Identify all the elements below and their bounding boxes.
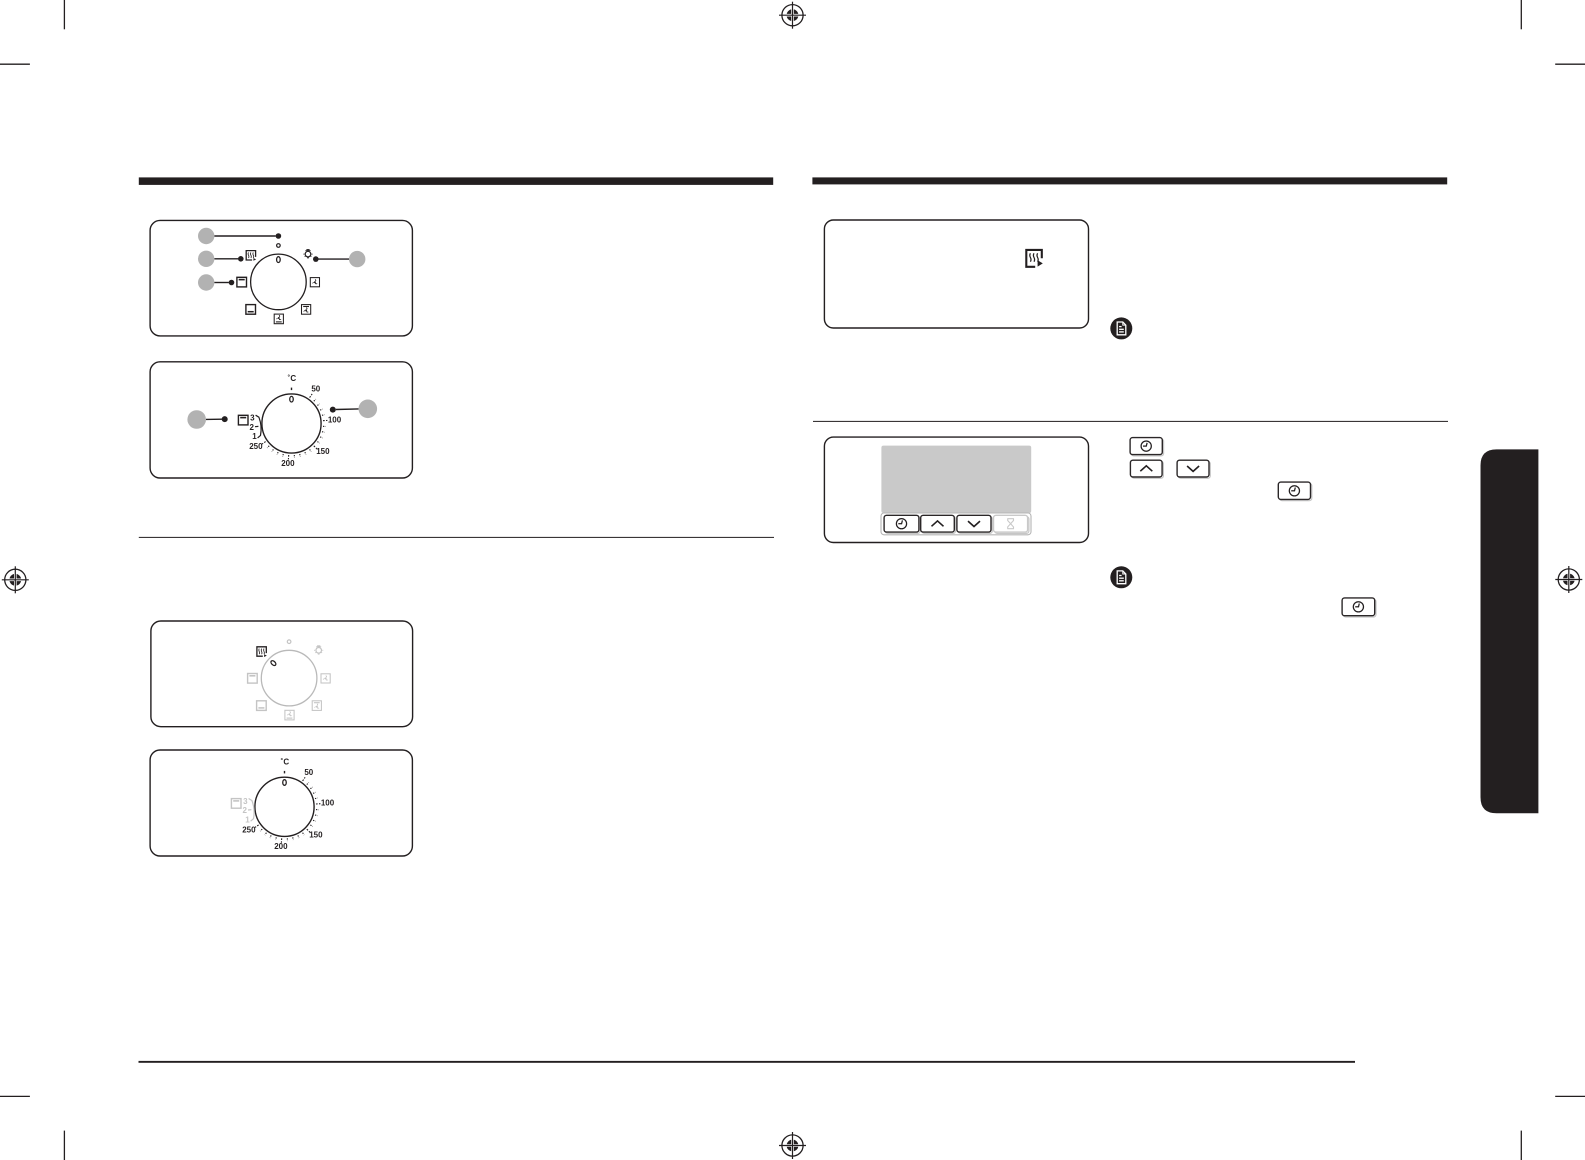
svg-text:200: 200 bbox=[274, 842, 288, 851]
svg-text:1: 1 bbox=[245, 816, 250, 825]
svg-text:100: 100 bbox=[321, 799, 335, 808]
svg-text:˚C: ˚C bbox=[288, 374, 297, 383]
svg-text:2: 2 bbox=[242, 806, 247, 815]
svg-text:2: 2 bbox=[249, 423, 254, 432]
svg-text:100: 100 bbox=[328, 415, 342, 424]
svg-text:200: 200 bbox=[281, 459, 295, 468]
svg-text:3: 3 bbox=[250, 414, 255, 423]
svg-text:50: 50 bbox=[304, 768, 313, 777]
svg-text:50: 50 bbox=[311, 385, 320, 394]
svg-text:˚C: ˚C bbox=[281, 758, 290, 767]
svg-text:250: 250 bbox=[249, 442, 263, 451]
svg-text:150: 150 bbox=[309, 830, 323, 839]
svg-text:250: 250 bbox=[242, 825, 256, 834]
svg-text:3: 3 bbox=[243, 797, 248, 806]
svg-text:150: 150 bbox=[316, 447, 330, 456]
svg-text:1: 1 bbox=[252, 432, 257, 441]
